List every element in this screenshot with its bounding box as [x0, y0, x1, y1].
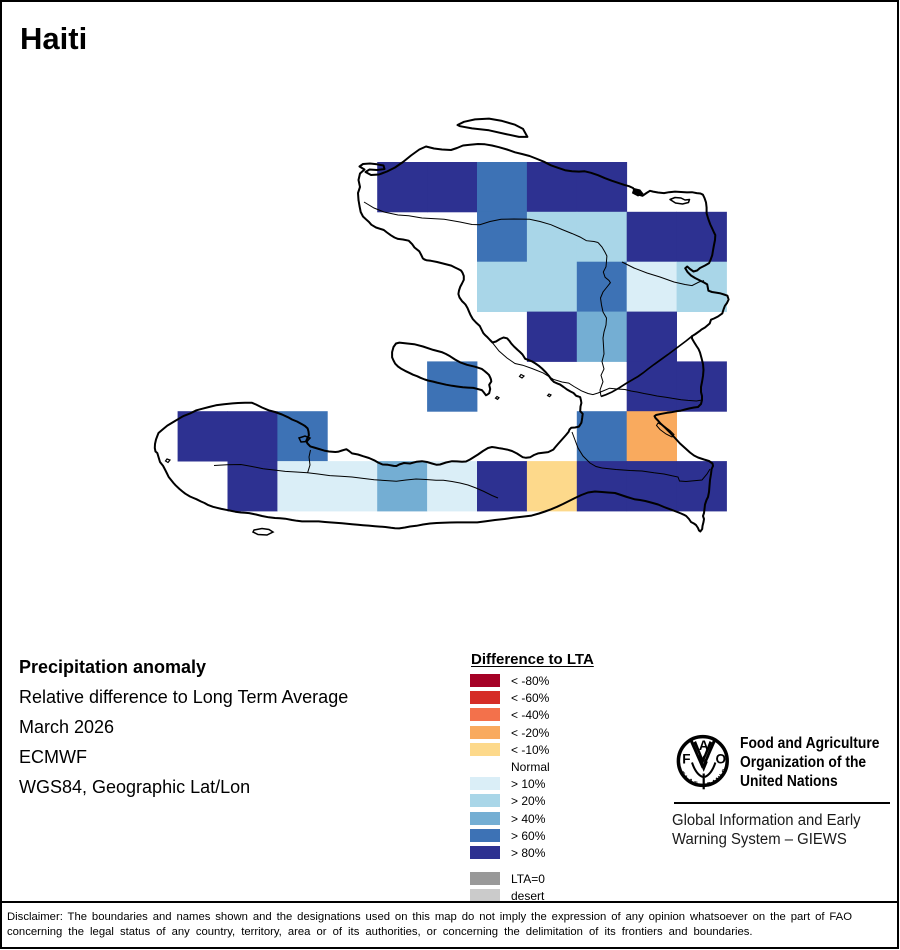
svg-text:F: F — [682, 752, 690, 767]
svg-text:A: A — [699, 738, 709, 753]
svg-text:O: O — [716, 752, 727, 767]
